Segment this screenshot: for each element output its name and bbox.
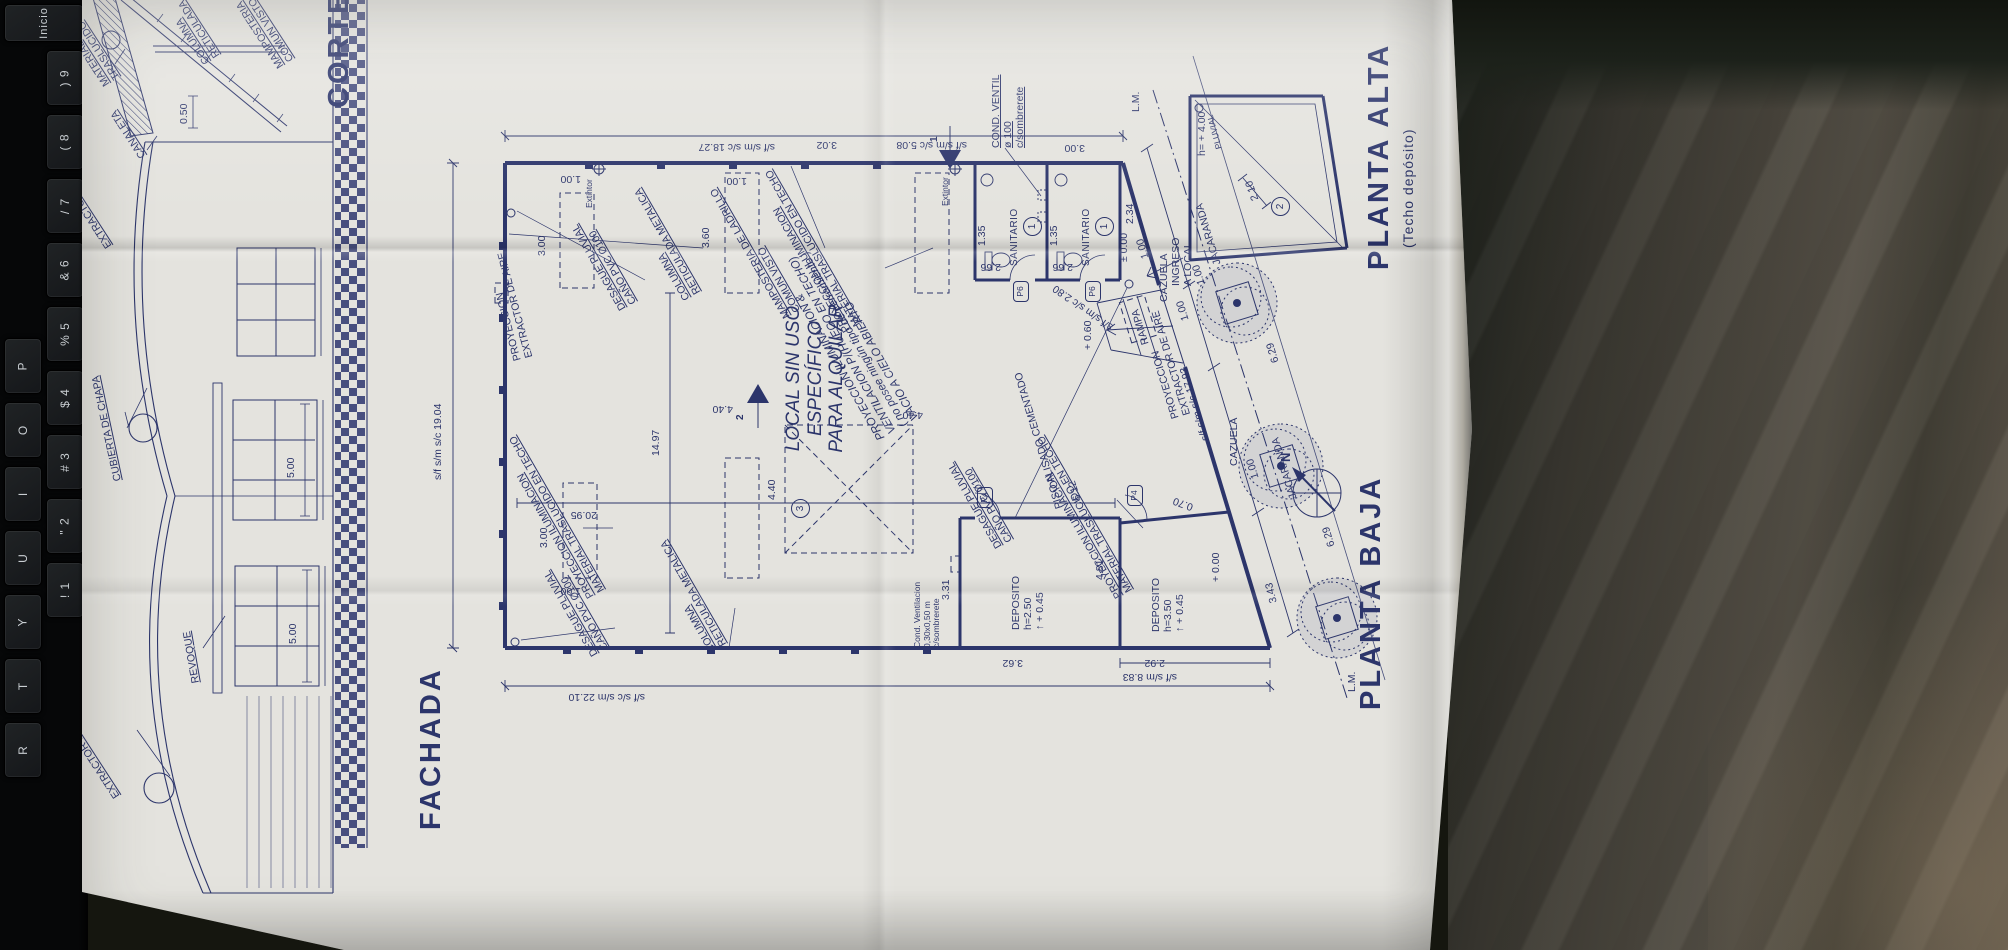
label-ingreso: INGRESO A LOCAL — [1171, 238, 1195, 286]
keyboard-key-label: ( 8 — [58, 133, 72, 150]
dim-skylight-360-r: 3.60 — [701, 228, 713, 248]
tag-door-p4-b: P4 — [1127, 485, 1143, 506]
label-sanitario-1: SANITARIO — [1009, 208, 1020, 266]
keyboard-key-label: P — [16, 361, 30, 370]
dim-corte-050: 0.50 — [179, 104, 191, 124]
dim-sanit-135-b: 1.35 — [1049, 226, 1061, 246]
dim-window-500-b: 5.00 — [286, 458, 298, 478]
dim-street-000: + 0.00 — [1211, 553, 1223, 583]
keyboard-key-label: ) 9 — [58, 69, 72, 86]
dim-440-b: 4.40 — [767, 480, 779, 500]
keyboard-key: ! 1 — [46, 562, 84, 618]
keyboard-key: $ 4 — [46, 370, 84, 426]
keyboard-key-label: & 6 — [58, 259, 72, 280]
tag-sanitario-2: 1 — [1095, 217, 1114, 236]
dim-chain-right: s/f s/m s/c 18.27 — [699, 140, 775, 152]
dim-hall-length: 20.95 — [571, 508, 597, 520]
dim-sanit-135-a: 1.35 — [977, 226, 989, 246]
label-deposito-2: DEPOSITO h=3.50 ↑ + 0.45 — [1151, 578, 1187, 632]
keyboard-key-label: I — [16, 492, 30, 496]
tag-pa-2: 2 — [1271, 197, 1290, 216]
dim-sanit-234: 2.34 — [1125, 204, 1137, 224]
keyboard-key: # 3 — [46, 434, 84, 490]
mark-section-2: 2 — [735, 414, 746, 420]
label-cazuela-a: CAZUELA — [1159, 254, 1171, 302]
keyboard-key: I — [4, 466, 42, 522]
dim-right-302: 3.02 — [817, 138, 837, 150]
dim-window-500-a: 5.00 — [288, 624, 300, 644]
title-corte: CORTE — [323, 0, 356, 108]
blueprint-sheet: MATERIAL TRASLUCIDOCOLUMNA RETICULADAMAM… — [85, 0, 1460, 948]
title-planta-alta: PLANTA ALTA — [1363, 43, 1396, 270]
keyboard-key: O — [4, 402, 42, 458]
dim-dep-331: 3.31 — [941, 580, 953, 600]
mark-section-1: 1 — [929, 136, 940, 142]
tag-door-p6-b: P6 — [1085, 281, 1101, 302]
keyboard-key-label: % 5 — [58, 322, 72, 346]
dim-right-300: 3.00 — [1065, 141, 1085, 153]
dim-dep-362: 3.62 — [1003, 656, 1023, 668]
dim-440-a: 4.40 — [713, 402, 733, 414]
dim-skylight-100-r: 1.00 — [561, 172, 581, 184]
keyboard-key: / 7 — [46, 178, 84, 234]
dim-chain-883: s/f s/m 8.83 — [1123, 670, 1177, 682]
tag-local-3: 3 — [791, 499, 810, 518]
label-sanitario-2: SANITARIO — [1081, 208, 1092, 266]
keyboard-key-label: T — [16, 682, 30, 690]
keyboard-key-label: # 3 — [58, 452, 72, 472]
dim-hall-width: 14.97 — [651, 430, 663, 456]
label-cazuela-b: CAZUELA — [1229, 418, 1241, 466]
keyboard-key: & 6 — [46, 242, 84, 298]
keyboard-key: ) 9 — [46, 50, 84, 106]
blueprint-paper: MATERIAL TRASLUCIDOCOLUMNA RETICULADAMAM… — [82, 0, 1474, 950]
dim-chain-left: s/f s/c s/m 22.10 — [569, 690, 645, 702]
keyboard-key-label: $ 4 — [58, 388, 72, 408]
keyboard-key: T — [4, 658, 42, 714]
keyboard-key: Y — [4, 594, 42, 650]
dim-level-000: ± 0.00 — [1119, 233, 1131, 262]
keyboard-key-label: O — [16, 425, 30, 435]
keyboard-key-label: / 7 — [58, 198, 72, 214]
title-planta-baja: PLANTA BAJA — [1355, 476, 1388, 710]
dim-skylight-300-r: 3.00 — [537, 236, 549, 256]
keyboard-key-label: " 2 — [58, 517, 72, 534]
label-cond-ventil: COND. VENTIL ø 100 c/sombrerete — [991, 74, 1027, 148]
tag-door-p4-a: P4 — [977, 487, 993, 508]
label-deposito-1: DEPOSITO h=2.50 ↑ + 0.45 — [1011, 576, 1047, 630]
keyboard-key-label: Inicio — [38, 7, 50, 39]
dim-sanit-266-a: 2.66 — [981, 260, 1001, 272]
keyboard-key-label: U — [16, 553, 30, 563]
keyboard-key-label: R — [16, 745, 30, 755]
keyboard-key-label: Y — [16, 617, 30, 626]
subtitle-planta-alta: (Techo depósito) — [1401, 128, 1417, 248]
dim-dep-292: 2.92 — [1145, 656, 1165, 668]
dim-dep-481: 4.81 — [1095, 560, 1107, 580]
tag-sanitario-1: 1 — [1023, 217, 1042, 236]
dim-sanit-266-b: 2.66 — [1053, 260, 1073, 272]
label-extintor-a: Extintor — [585, 179, 595, 208]
photo-of-blueprint: Inicio) 9( 8/ 7& 6% 5$ 4# 3" 2! 1POIUYTR — [0, 0, 2008, 950]
dim-chain-top: s/f s/m s/c 19.04 — [433, 404, 445, 480]
keyboard-edge: Inicio) 9( 8/ 7& 6% 5$ 4# 3" 2! 1POIUYTR — [0, 0, 88, 950]
label-cond-vent-dep: Cond. Ventilacion 0,30x0,50 m c/sombrere… — [913, 582, 942, 648]
keyboard-key: U — [4, 530, 42, 586]
keyboard-key: P — [4, 338, 42, 394]
dim-level-060: + 0.60 — [1083, 321, 1095, 351]
keyboard-key-label: ! 1 — [58, 582, 72, 598]
keyboard-key: R — [4, 722, 42, 778]
keyboard-key: Inicio — [4, 4, 84, 42]
desk-shadow — [1448, 0, 2008, 110]
keyboard-key: % 5 — [46, 306, 84, 362]
label-lm-a: L.M. — [1131, 92, 1143, 112]
label-extintor-b: Extintor — [941, 177, 951, 206]
keyboard-key: " 2 — [46, 498, 84, 554]
title-fachada: FACHADA — [415, 667, 448, 830]
tag-door-p6-a: P6 — [1013, 281, 1029, 302]
desk-background — [1448, 0, 2008, 950]
label-north: N — [1279, 453, 1294, 462]
keyboard-key: ( 8 — [46, 114, 84, 170]
